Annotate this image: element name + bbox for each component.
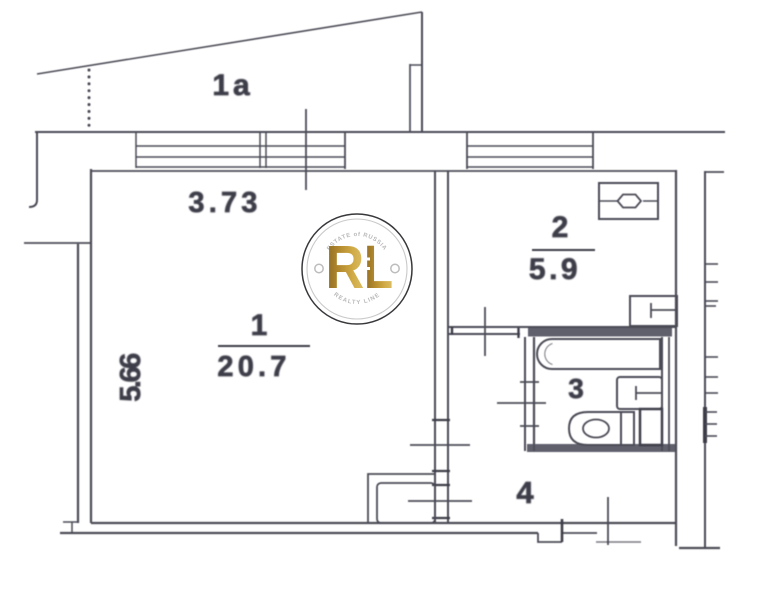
svg-text:R: R: [326, 234, 365, 302]
svg-text:20.7: 20.7: [217, 351, 290, 383]
svg-text:4: 4: [516, 475, 534, 510]
svg-text:L: L: [364, 232, 393, 301]
svg-text:5.9: 5.9: [529, 253, 581, 286]
svg-text:1: 1: [251, 309, 268, 342]
svg-text:5.66: 5.66: [115, 353, 147, 402]
svg-text:3.73: 3.73: [188, 187, 261, 219]
svg-text:1a: 1a: [212, 69, 253, 102]
svg-text:3: 3: [568, 373, 584, 404]
svg-text:2: 2: [552, 211, 569, 244]
